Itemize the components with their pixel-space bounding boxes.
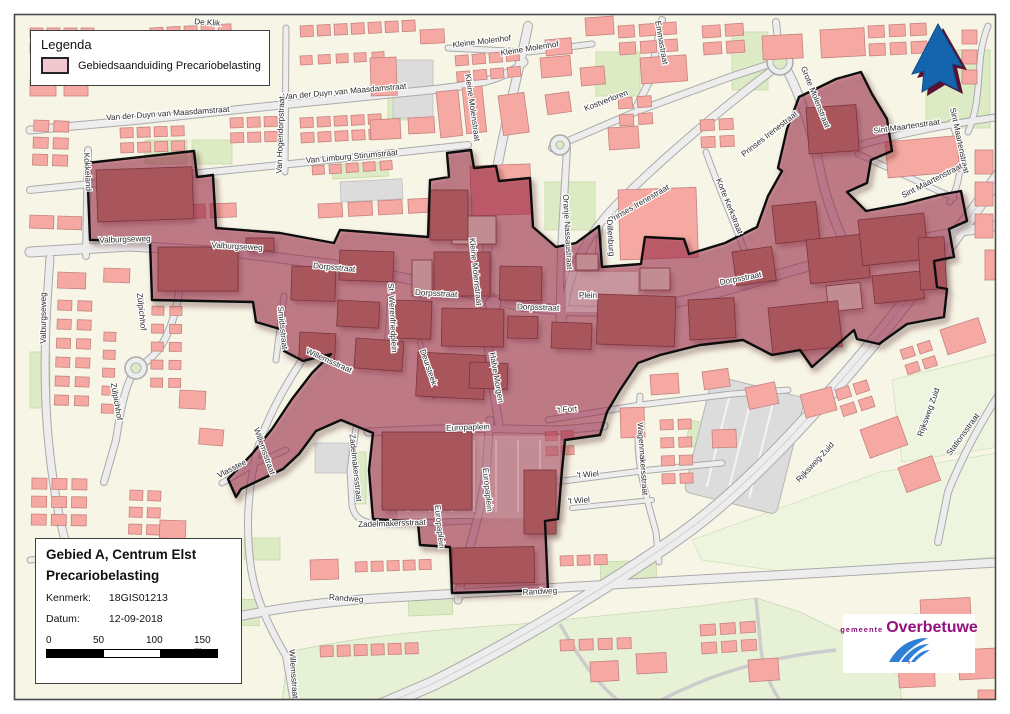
building [576,254,598,270]
building [499,266,542,301]
building [310,559,339,580]
building [978,690,1004,706]
building [199,428,224,446]
kenmerk-value: 18GIS01213 [109,592,168,604]
building [420,29,445,44]
street-label: Plein [579,291,598,300]
building [498,92,529,135]
building-cluster [962,30,977,84]
title-block: Gebied A, Centrum Elst Precariobelasting… [35,538,242,684]
scale-bar: 0 50 100 150 m [46,635,218,658]
building [337,300,380,328]
building [524,470,556,534]
building [872,271,925,304]
street-label: Randweg [522,586,557,597]
building [545,92,572,115]
street-label: De Klik [194,17,221,28]
gemeente-overbetuwe-logo: gemeenteOverbetuwe ° [843,614,975,673]
legend-title: Legenda [41,37,269,52]
building [918,237,947,290]
kenmerk-row: Kenmerk: 18GIS01213 [46,592,231,604]
building [452,547,535,584]
scale-tick: 100 [146,635,163,646]
building [96,167,194,222]
zone-swatch-icon [41,57,69,74]
map-sheet: De KlikVan der Duyn van MaasdamstraatVan… [0,0,1010,714]
logo-name-text: Overbetuwe [886,619,978,636]
street-label: Dorpsstraat [517,302,560,312]
building [551,322,592,349]
scale-ticks: 0 50 100 150 m [46,635,218,647]
street-label: Valburgseweg [99,234,151,245]
building [712,429,737,448]
green-patch [192,140,232,164]
datum-value: 12-09-2018 [109,613,163,625]
building [382,432,472,510]
datum-row: Datum: 12-09-2018 [46,613,231,625]
building [370,118,401,140]
scale-segment [160,650,217,657]
street-label: 't Wiel [577,469,600,480]
building [508,316,538,339]
building [688,298,736,340]
legend-item-label: Gebiedsaanduiding Precariobelasting [78,60,261,72]
building-cluster [975,150,993,238]
building [158,247,238,291]
building [806,105,859,154]
logo-dot: ° [907,663,910,667]
building [436,90,463,138]
paved-area [315,443,349,473]
building [104,268,130,283]
building [762,34,803,60]
building [441,308,504,347]
building [650,373,679,395]
building [430,190,468,240]
building [768,301,842,354]
building [57,272,86,289]
building [179,390,206,409]
logo-gemeente-text: gemeente [840,625,883,634]
building-cluster [355,559,431,572]
legend-item: Gebiedsaanduiding Precariobelasting [41,57,269,74]
scale-segment [47,650,104,657]
building [408,117,435,134]
building [596,294,676,347]
paved-area [340,179,403,202]
building [580,66,605,86]
street-label: 't Wiel [568,495,591,505]
scale-tick: 50 [93,635,104,646]
scale-bar-graphic [46,649,218,658]
map-subtitle: Precariobelasting [46,568,231,583]
building [640,268,670,290]
building [748,658,779,682]
building [590,661,619,682]
legend: Legenda Gebiedsaanduiding Precariobelast… [30,30,270,86]
building [585,16,614,36]
building [608,126,639,150]
building [820,28,865,58]
building [772,201,820,243]
street-label: Valburgseweg [39,292,48,344]
street-label: Europaplein [446,422,490,433]
building [702,368,730,389]
building-cluster [560,554,607,566]
building-cluster [31,478,87,526]
kenmerk-label: Kenmerk: [46,592,106,604]
building [159,520,186,539]
scale-tick: 0 [46,635,52,646]
street-label: 't Fort [556,404,578,414]
map-title: Gebied A, Centrum Elst [46,547,231,562]
building [636,652,667,674]
datum-label: Datum: [46,613,106,625]
building [540,55,572,78]
